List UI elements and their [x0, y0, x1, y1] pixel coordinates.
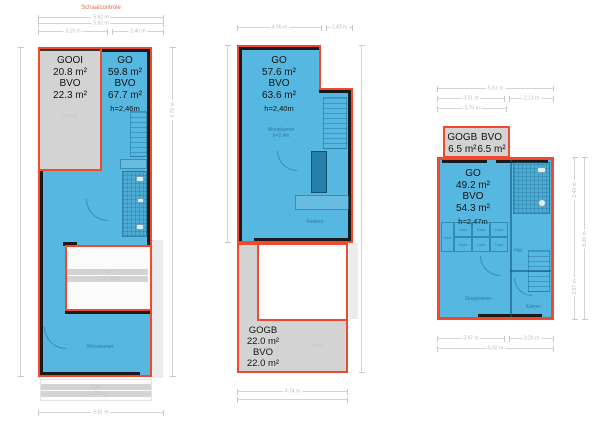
dimension-label: 5.61 m	[91, 410, 110, 416]
dimension-line-vertical	[227, 45, 228, 243]
room-label-garage: Garage	[40, 113, 100, 119]
dimension-label: 4.95 m	[270, 25, 289, 31]
closet-label: Kast	[477, 242, 485, 247]
dimension-line: 5.62 m	[38, 17, 164, 18]
door-swing-arc	[86, 199, 108, 221]
door-swing-arc	[514, 278, 532, 296]
wall-segment	[102, 49, 150, 52]
dimension-line-vertical: 4.79 m	[172, 47, 173, 377]
room-label-room: Kamer	[518, 304, 548, 310]
kitchen-unit	[311, 151, 327, 193]
dimension-line: 5.92 m	[437, 348, 554, 349]
scale-check-title: Schaalcontrole	[38, 5, 164, 11]
kitchen-counter	[120, 159, 147, 169]
area-value: 6.5 m²	[447, 144, 477, 156]
dimension-line: 5.61 m	[38, 412, 164, 413]
garage-area: GOOI 20.8 m² BVO 22.3 m² Garage	[40, 49, 102, 171]
area-value: 49.2 m²	[442, 180, 504, 192]
staircase	[323, 97, 347, 149]
dimension-label: 3.97 m	[461, 336, 480, 342]
dimension-label: 4.79 m	[170, 100, 176, 119]
area-value: 63.6 m²	[243, 90, 315, 102]
area-value: 22.0 m²	[241, 336, 285, 347]
gogb-column: GOGB 6.5 m²	[447, 132, 477, 155]
dimension-label: 2.43 m	[572, 180, 578, 199]
closet-cell: Kast	[454, 222, 472, 237]
toilet-fixture	[537, 167, 546, 173]
wall-segment	[254, 238, 351, 241]
bathroom-area	[122, 171, 147, 237]
dimension-label: 2.57 m	[572, 278, 578, 297]
wall-segment	[65, 311, 150, 314]
floor-plan-first: GO 57.6 m² BVO 63.6 m² h=2,40m Woonkamer…	[237, 45, 353, 243]
room-label-courtyard: Tuin	[67, 269, 148, 275]
closet-label: Kast	[495, 242, 503, 247]
closet-cell: Kast	[490, 222, 508, 237]
area-value: 54.3 m²	[442, 203, 504, 215]
room-label-courtyard-area: Ca.17.2m2	[67, 276, 148, 282]
closet-cell: Kast	[441, 222, 454, 252]
dimension-line: 5.62 m	[38, 23, 164, 24]
area-value: 59.8 m²	[102, 67, 148, 79]
dimension-line: 4.74 m	[237, 391, 348, 392]
closet-row: Kast Kast Kast Kast Kast Kast	[454, 222, 508, 252]
dimension-label: 1.43 m	[330, 25, 349, 31]
area-type: BVO	[40, 78, 100, 90]
wall-segment	[348, 88, 351, 241]
building-notch	[319, 45, 353, 90]
door-swing-arc	[44, 327, 66, 349]
dimension-line-vertical	[20, 47, 21, 377]
room-label-terrace: Terras	[291, 343, 341, 349]
closet-label: Kast	[477, 227, 485, 232]
dimension-label: 2.13 m	[522, 96, 541, 102]
dimension-line: 4.95 m	[237, 27, 322, 28]
room-label-kitchen: Keuken	[285, 219, 345, 225]
dimension-line-vertical	[361, 45, 362, 373]
floor-plan-ground: GOOI 20.8 m² BVO 22.3 m² Garage GO 59.8 …	[38, 47, 152, 377]
closet-label: Kast	[459, 227, 467, 232]
wall-segment	[40, 372, 140, 375]
area-type: BVO	[241, 347, 285, 358]
door-swing-arc	[277, 151, 297, 171]
dimension-label: 8.26 m	[582, 229, 588, 248]
dimension-line: 1.43 m	[326, 27, 353, 28]
bathroom-area	[513, 162, 550, 214]
dimension-label: 2.40 m	[128, 29, 147, 35]
gogb-balcony: GOGB 6.5 m² BVO 6.5 m²	[443, 126, 510, 158]
garden-strip: Tuin Ca.9.2m2	[40, 379, 152, 401]
dimension-line: 3.19 m	[38, 31, 108, 32]
dimension-label: 3.51 m	[461, 96, 480, 102]
dimension-line-vertical: 2.43 m 2.57 m	[574, 157, 575, 320]
outside-area	[152, 240, 163, 378]
dimension-line: 5.61 m	[437, 88, 554, 89]
room-label-bedroom: Slaapkamer	[450, 296, 506, 302]
area-type: GO	[442, 168, 504, 180]
open-area	[257, 245, 346, 321]
dimension-label: 5.62 m	[91, 21, 110, 27]
area-type: GOGB	[447, 132, 477, 144]
closet-label: Kast	[495, 227, 503, 232]
courtyard-area: Tuin Ca.17.2m2	[65, 245, 150, 311]
area-value: 22.3 m²	[40, 90, 100, 102]
area-type: BVO	[102, 78, 148, 90]
closet-label: Kast	[459, 242, 467, 247]
wall-segment	[239, 47, 242, 241]
room-height-label: h=2.4m	[251, 133, 311, 139]
dimension-label: 3.79 m	[462, 106, 481, 112]
dimension-line: 3.20 m	[509, 338, 554, 339]
door-swing-arc	[480, 256, 500, 276]
go-area-label: GO 57.6 m² BVO 63.6 m² h=2,40m	[243, 55, 315, 115]
room-label-living: Woonkamer	[70, 344, 130, 350]
floor-plan-sheet: Schaalcontrole 5.62 m 5.62 m 3.19 m 2.40…	[0, 0, 600, 424]
dimension-line: 3.97 m	[437, 338, 505, 339]
area-value: 22.0 m²	[241, 358, 285, 369]
wall-segment	[239, 47, 322, 50]
bvo-column: BVO 6.5 m²	[477, 132, 505, 155]
room-label-garden-area: Ca.9.2m2	[41, 391, 151, 397]
gogb-terrace: GOGB 22.0 m² BVO 22.0 m² Terras	[237, 243, 348, 373]
sink-fixture	[137, 198, 144, 203]
toilet-fixture	[136, 224, 144, 230]
go-area-label: GO 49.2 m² BVO 54.3 m² h=2,47m	[442, 168, 504, 228]
closet-cell: Kast	[490, 237, 508, 252]
area-value: 67.7 m²	[102, 90, 148, 102]
area-type: BVO	[243, 78, 315, 90]
dimension-label: 4.74 m	[283, 389, 302, 395]
gogb-area-label: GOGB 6.5 m² BVO 6.5 m²	[445, 132, 508, 155]
closet-cell: Kast	[454, 237, 472, 252]
staircase	[130, 111, 147, 157]
outside-area	[349, 243, 358, 319]
closet-cell: Kast	[472, 222, 490, 237]
wall-segment	[319, 90, 351, 93]
area-type: BVO	[442, 191, 504, 203]
interior-wall	[510, 160, 512, 317]
dimension-line: 2.13 m	[509, 98, 554, 99]
dimension-label: 5.61 m	[486, 86, 505, 92]
dimension-label: 5.92 m	[486, 346, 505, 352]
closet-label: Kast	[443, 235, 451, 240]
go-area-label: GO 59.8 m² BVO 67.7 m² h=2,46m	[102, 55, 148, 115]
closet-cell: Kast	[472, 237, 490, 252]
area-value: 6.5 m²	[477, 144, 505, 156]
ceiling-height: h=2,40m	[243, 103, 315, 115]
dimension-line: 3.79 m	[437, 108, 507, 109]
room-label-hall: Hal	[510, 248, 526, 254]
area-type: GO	[243, 55, 315, 67]
floor-plan-second: GO 49.2 m² BVO 54.3 m² h=2,47m Kast Kast…	[437, 157, 554, 320]
area-type: GO	[102, 55, 148, 67]
garage-area-label: GOOI 20.8 m² BVO 22.3 m²	[40, 55, 100, 101]
dimension-label: 3.20 m	[522, 336, 541, 342]
kitchen-counter	[295, 195, 349, 210]
wall-segment	[442, 160, 487, 163]
area-value: 57.6 m²	[243, 67, 315, 79]
dimension-label: 3.19 m	[63, 29, 82, 35]
area-type: GOOI	[40, 55, 100, 67]
sink-fixture	[538, 199, 546, 207]
toilet-fixture	[136, 176, 144, 182]
gogb-area-label: GOGB 22.0 m² BVO 22.0 m²	[241, 325, 285, 369]
area-value: 20.8 m²	[40, 67, 100, 79]
dimension-line-vertical: 8.26 m	[584, 157, 585, 320]
area-type: BVO	[477, 132, 505, 144]
dimension-line: 2.40 m	[112, 31, 164, 32]
dimension-line: 3.51 m	[437, 98, 505, 99]
room-label-garden: Tuin	[41, 384, 151, 390]
wall-segment	[40, 171, 43, 375]
area-type: GOGB	[241, 325, 285, 336]
dimension-line	[237, 399, 348, 400]
